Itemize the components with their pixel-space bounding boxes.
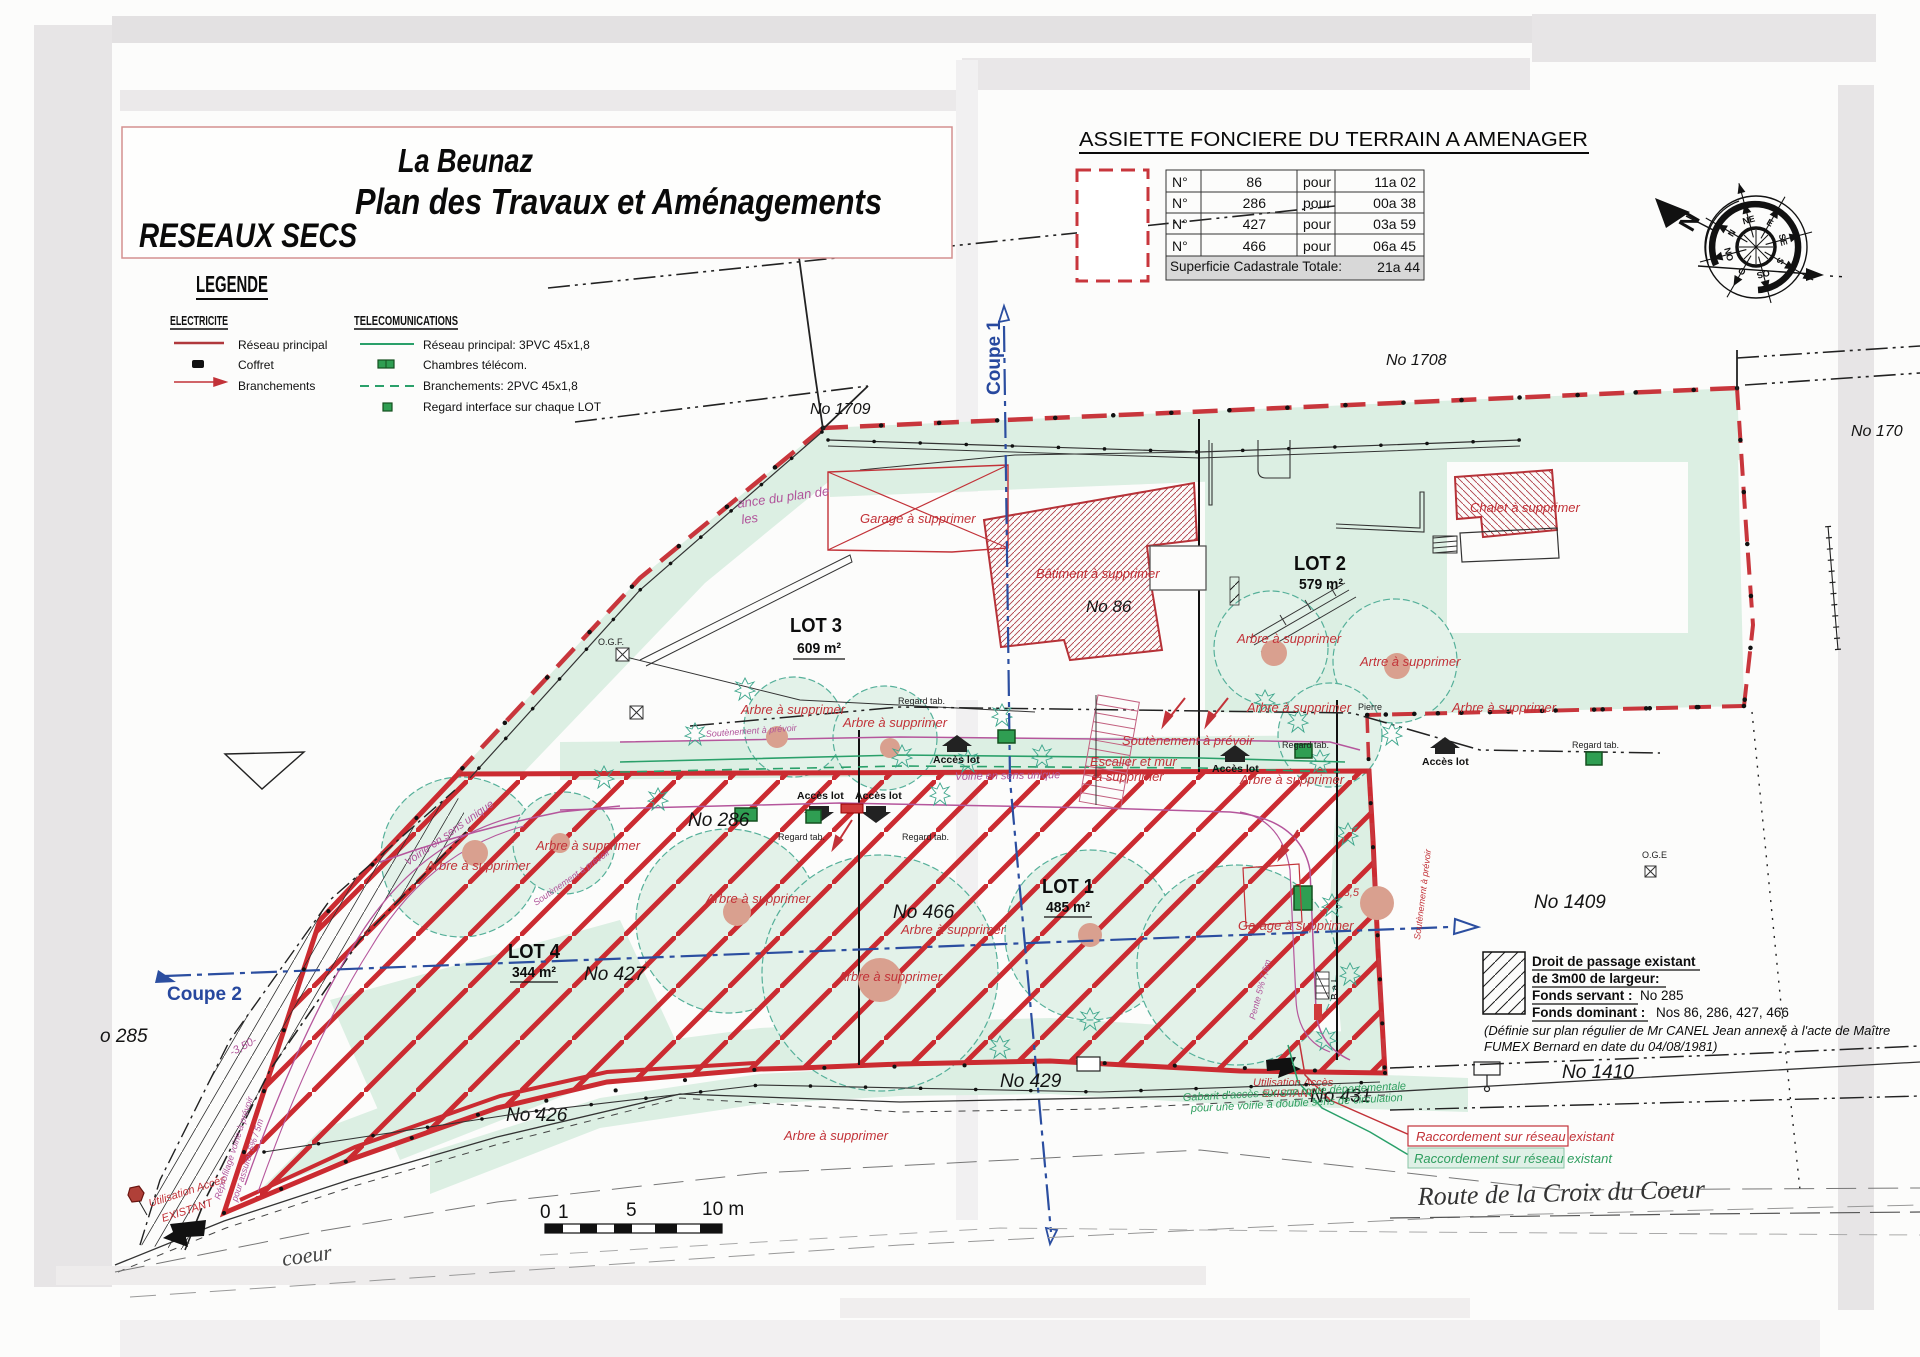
svg-text:Soutènement à prévoir: Soutènement à prévoir [1122, 733, 1254, 748]
svg-text:o 285: o 285 [100, 1026, 148, 1047]
svg-text:Arbre à supprimer: Arbre à supprimer [783, 1128, 889, 1143]
svg-text:1: 1 [558, 1202, 569, 1223]
svg-text:Accès lot: Accès lot [1422, 756, 1469, 768]
svg-text:FUMEX Bernard en date du 04/08: FUMEX Bernard en date du 04/08/1981) [1484, 1039, 1717, 1054]
svg-text:Arbre à supprimer: Arbre à supprimer [900, 922, 1006, 937]
svg-text:de 3m00 de largeur:: de 3m00 de largeur: [1532, 971, 1660, 986]
svg-text:No 427: No 427 [584, 964, 647, 985]
svg-text:No 285: No 285 [1640, 988, 1684, 1003]
svg-text:Regard interface sur chaque LO: Regard interface sur chaque LOT [423, 400, 602, 414]
svg-text:pour: pour [1303, 238, 1331, 254]
svg-text:Bâtiment à supprimer: Bâtiment à supprimer [1036, 566, 1160, 581]
svg-text:86: 86 [1246, 174, 1262, 190]
svg-text:Coupe 1: Coupe 1 [984, 320, 1005, 395]
svg-text:Garage à supprimer: Garage à supprimer [860, 511, 976, 526]
svg-text:Fonds dominant :: Fonds dominant : [1532, 1005, 1645, 1020]
svg-text:Coupe 2: Coupe 2 [167, 984, 242, 1005]
svg-text:579 m²: 579 m² [1299, 576, 1343, 593]
svg-text:286: 286 [1243, 195, 1267, 211]
svg-text:pour: pour [1303, 174, 1331, 190]
svg-text:Branchements: Branchements [238, 379, 315, 393]
svg-text:Chalet à supprimer: Chalet à supprimer [1470, 500, 1580, 515]
svg-text:(Définie sur plan régulier de: (Définie sur plan régulier de Mr CANEL J… [1484, 1023, 1890, 1038]
svg-text:-3,5: -3,5 [1340, 887, 1360, 899]
svg-text:ASSIETTE FONCIERE DU TERRAIN A: ASSIETTE FONCIERE DU TERRAIN A AMENAGER [1079, 129, 1588, 151]
svg-text:Nos 86, 286, 427, 466: Nos 86, 286, 427, 466 [1656, 1005, 1789, 1020]
svg-text:LOT 1: LOT 1 [1042, 876, 1094, 898]
svg-text:Chambres télécom.: Chambres télécom. [423, 358, 527, 372]
svg-text:No 1708: No 1708 [1386, 352, 1447, 369]
svg-text:10 m: 10 m [702, 1199, 744, 1220]
svg-text:à supprimer: à supprimer [1095, 769, 1164, 784]
svg-text:Voirie en sens unique: Voirie en sens unique [955, 769, 1061, 783]
svg-text:N°: N° [1172, 238, 1188, 254]
svg-text:Garage à supprimer: Garage à supprimer [1238, 918, 1354, 933]
svg-text:0: 0 [540, 1202, 551, 1223]
svg-text:Fonds servant :: Fonds servant : [1532, 988, 1633, 1003]
svg-text:Droit de passage existant: Droit de passage existant [1532, 954, 1696, 969]
svg-text:Arbre à supprimer: Arbre à supprimer [842, 715, 948, 730]
svg-text:TELECOMUNICATIONS: TELECOMUNICATIONS [354, 313, 458, 328]
svg-text:5: 5 [626, 1200, 637, 1221]
svg-text:21a 44: 21a 44 [1377, 259, 1420, 275]
svg-text:Arbre à supprimer: Arbre à supprimer [740, 702, 846, 717]
svg-text:Accès lot: Accès lot [855, 790, 902, 802]
svg-text:Escalier et mur: Escalier et mur [1090, 754, 1177, 769]
svg-text:466: 466 [1243, 238, 1267, 254]
svg-text:Réseau principal: Réseau principal [238, 338, 327, 352]
svg-text:Accès lot: Accès lot [797, 790, 844, 802]
svg-text:N°: N° [1172, 195, 1188, 211]
svg-text:Arbre à supprimer: Arbre à supprimer [425, 858, 531, 873]
svg-text:Regard tab.: Regard tab. [1282, 740, 1329, 750]
svg-text:344 m²: 344 m² [512, 964, 556, 981]
svg-text:Arbre à supprimer: Arbre à supprimer [1236, 631, 1342, 646]
svg-text:Réseau principal: 3PVC 45x1,8: Réseau principal: 3PVC 45x1,8 [423, 338, 590, 352]
svg-text:No 170: No 170 [1851, 423, 1903, 440]
svg-text:Coffret: Coffret [238, 358, 274, 372]
svg-text:N°: N° [1172, 216, 1188, 232]
svg-text:427: 427 [1243, 216, 1267, 232]
svg-text:Arbre à supprimer: Arbre à supprimer [705, 891, 811, 906]
svg-text:B.a.L: B.a.L [1330, 976, 1341, 1000]
svg-text:Pierre: Pierre [1358, 702, 1382, 712]
svg-text:Regard tab.: Regard tab. [898, 696, 945, 706]
svg-text:Regard tab.: Regard tab. [778, 832, 825, 842]
svg-text:No 1410: No 1410 [1562, 1062, 1634, 1083]
svg-text:O.G.F.: O.G.F. [598, 637, 624, 647]
svg-text:Arbre à supprimer: Arbre à supprimer [837, 969, 943, 984]
svg-text:Accès lot: Accès lot [1212, 763, 1259, 775]
svg-text:No 466: No 466 [893, 902, 955, 923]
svg-text:N°: N° [1172, 174, 1188, 190]
svg-text:No 286: No 286 [688, 810, 750, 831]
svg-text:ELECTRICITE: ELECTRICITE [170, 313, 228, 328]
svg-text:Regard tab.: Regard tab. [1572, 740, 1619, 750]
svg-text:pour: pour [1303, 195, 1331, 211]
svg-text:La Beunaz: La Beunaz [398, 142, 533, 179]
svg-text:Superficie Cadastrale Totale:: Superficie Cadastrale Totale: [1170, 258, 1342, 274]
svg-text:Arbre à supprimer: Arbre à supprimer [1246, 700, 1352, 715]
svg-text:pour: pour [1303, 216, 1331, 232]
svg-text:485 m²: 485 m² [1046, 899, 1090, 916]
svg-text:LOT 4: LOT 4 [508, 941, 561, 963]
svg-text:Arbre à supprimer: Arbre à supprimer [535, 838, 641, 853]
svg-text:11a 02: 11a 02 [1374, 174, 1416, 190]
svg-text:609 m²: 609 m² [797, 640, 841, 657]
svg-text:Accès lot: Accès lot [933, 754, 980, 766]
svg-text:06a 45: 06a 45 [1373, 238, 1416, 254]
svg-text:Arbre à supprimer: Arbre à supprimer [1451, 700, 1557, 715]
svg-text:00a 38: 00a 38 [1373, 195, 1416, 211]
svg-text:Raccordement sur réseau exista: Raccordement sur réseau existant [1416, 1129, 1615, 1144]
svg-text:03a 59: 03a 59 [1373, 216, 1416, 232]
svg-text:No 86: No 86 [1086, 597, 1132, 616]
svg-text:Raccordement sur réseau exista: Raccordement sur réseau existant [1414, 1151, 1613, 1166]
svg-text:LOT 2: LOT 2 [1294, 553, 1346, 575]
svg-text:les: les [740, 510, 759, 527]
svg-text:O.G.E: O.G.E [1642, 850, 1667, 860]
svg-text:Regard tab.: Regard tab. [902, 832, 949, 842]
svg-text:Branchements: 2PVC 45x1,8: Branchements: 2PVC 45x1,8 [423, 379, 578, 393]
svg-text:No 1409: No 1409 [1534, 892, 1606, 913]
svg-text:RESEAUX SECS: RESEAUX SECS [139, 217, 357, 255]
svg-text:LEGENDE: LEGENDE [196, 271, 268, 297]
svg-text:No 1709: No 1709 [810, 401, 871, 418]
svg-text:LOT 3: LOT 3 [790, 615, 842, 637]
svg-text:Artre à supprimer: Artre à supprimer [1359, 654, 1461, 669]
svg-text:Plan des Travaux et Aménagemen: Plan des Travaux et Aménagements [355, 181, 882, 222]
